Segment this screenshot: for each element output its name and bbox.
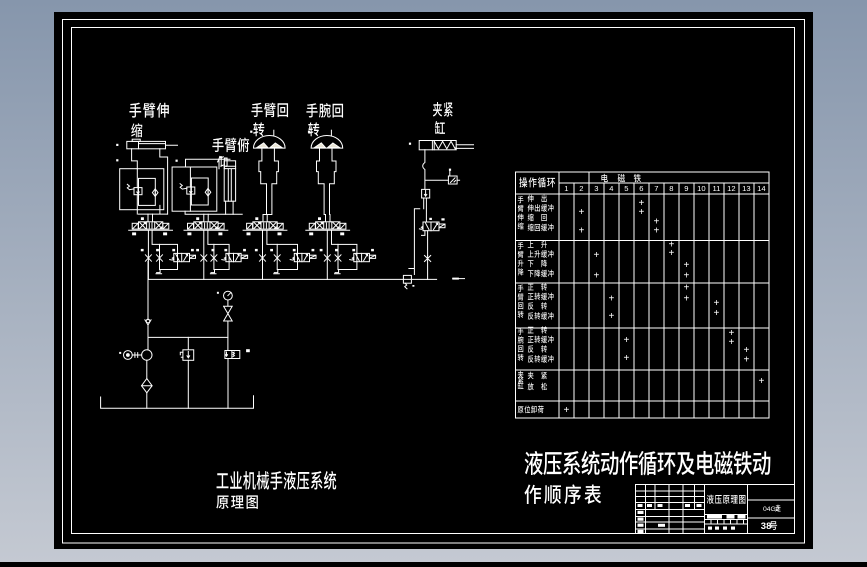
svg-text:5: 5 — [624, 184, 628, 193]
svg-text:+: + — [758, 376, 764, 387]
svg-text:3: 3 — [594, 184, 598, 193]
svg-text:13: 13 — [742, 184, 750, 193]
svg-text:+: + — [668, 248, 674, 259]
svg-text:+: + — [683, 271, 689, 282]
svg-text:+: + — [653, 226, 659, 237]
svg-text:38: 38 — [761, 521, 772, 532]
svg-text:+: + — [578, 207, 584, 218]
svg-text:10: 10 — [697, 184, 705, 193]
svg-text:+: + — [593, 271, 599, 282]
svg-text:6: 6 — [639, 184, 643, 193]
svg-text:+: + — [743, 355, 749, 366]
svg-text:+: + — [623, 353, 629, 364]
svg-text:+: + — [683, 283, 689, 294]
svg-text:+: + — [728, 337, 734, 348]
svg-text:4: 4 — [609, 184, 613, 193]
svg-text:+: + — [608, 311, 614, 322]
svg-text:04G2: 04G2 — [763, 506, 780, 513]
svg-text:14: 14 — [757, 184, 765, 193]
svg-text:+: + — [713, 308, 719, 319]
svg-text:+: + — [563, 405, 569, 416]
svg-text:1: 1 — [564, 184, 568, 193]
svg-text:12: 12 — [727, 184, 735, 193]
svg-text:+: + — [683, 260, 689, 271]
svg-text:7: 7 — [654, 184, 658, 193]
svg-text:+: + — [623, 335, 629, 346]
svg-text:2: 2 — [579, 184, 583, 193]
svg-text:9: 9 — [684, 184, 688, 193]
svg-text:8: 8 — [669, 184, 673, 193]
svg-text:+: + — [638, 207, 644, 218]
svg-text:+: + — [608, 294, 614, 305]
svg-text:+: + — [593, 250, 599, 261]
svg-text:+: + — [683, 294, 689, 305]
svg-text:11: 11 — [712, 184, 720, 193]
svg-text:+: + — [578, 226, 584, 237]
